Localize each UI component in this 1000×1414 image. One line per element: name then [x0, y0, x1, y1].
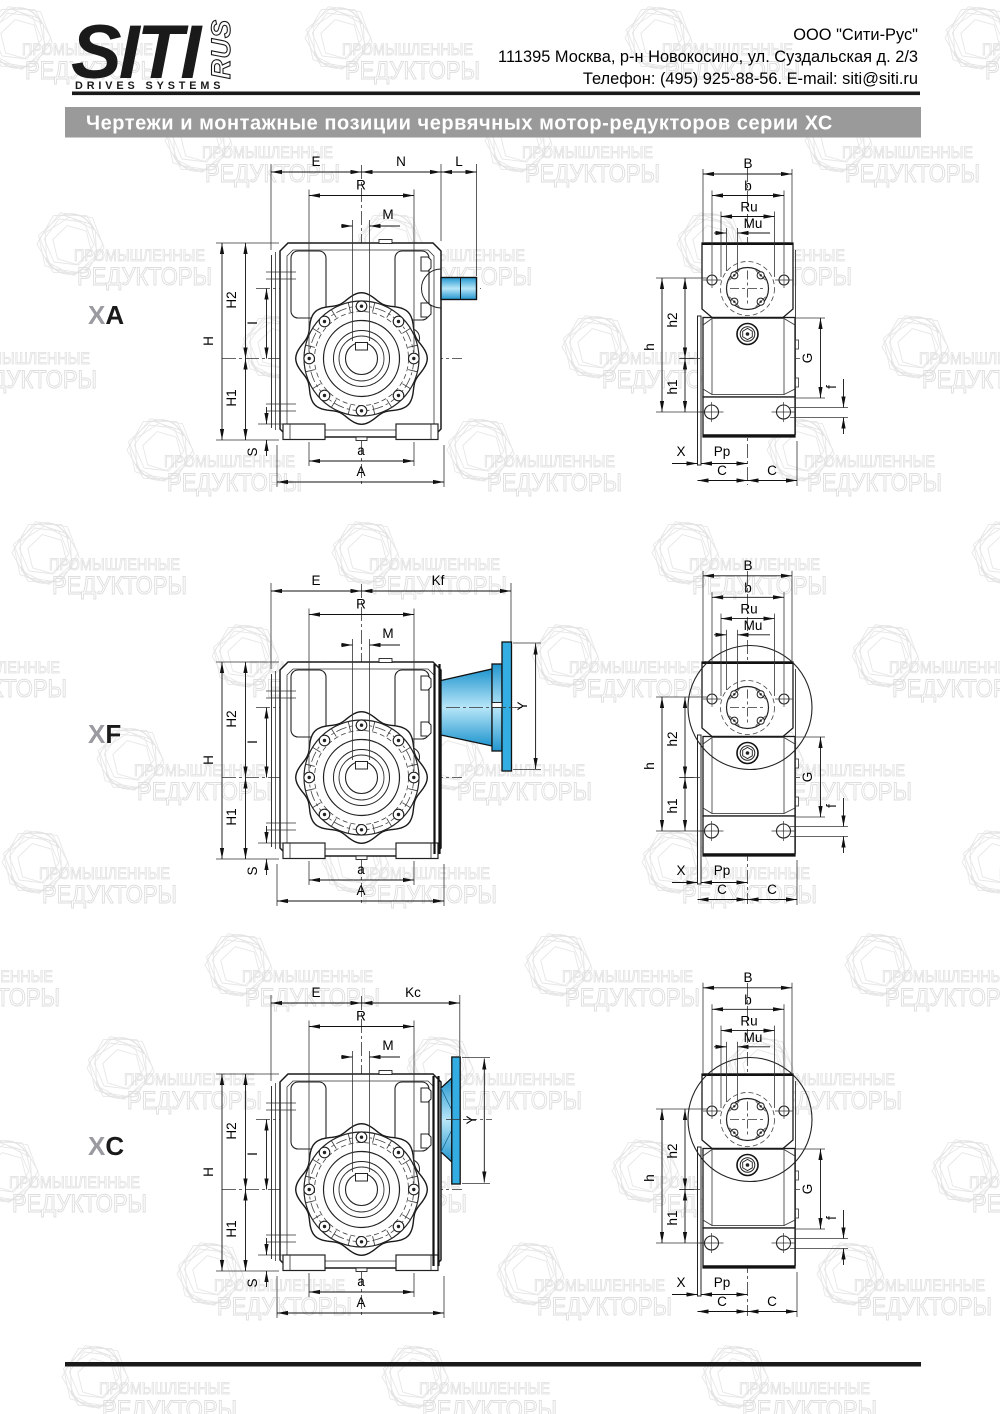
svg-text:b: b	[744, 992, 752, 1007]
svg-text:H2: H2	[224, 291, 239, 308]
svg-text:f: f	[824, 1216, 839, 1220]
svg-text:DRIVES SYSTEMS: DRIVES SYSTEMS	[75, 80, 224, 92]
svg-text:h: h	[642, 762, 657, 770]
svg-text:G: G	[800, 353, 815, 364]
svg-text:M: M	[382, 626, 393, 641]
svg-text:H: H	[201, 755, 216, 765]
svg-text:C: C	[767, 463, 777, 478]
svg-text:C: C	[717, 1294, 727, 1309]
svg-text:Pp: Pp	[714, 444, 731, 459]
svg-text:R: R	[356, 1009, 366, 1024]
svg-text:A: A	[356, 883, 365, 898]
svg-text:R: R	[356, 597, 366, 612]
svg-text:S: S	[245, 447, 260, 456]
svg-text:Ru: Ru	[740, 1014, 757, 1029]
svg-text:Y: Y	[515, 701, 530, 710]
svg-text:C: C	[717, 463, 727, 478]
svg-text:E: E	[311, 154, 320, 169]
svg-text:I: I	[245, 321, 260, 325]
svg-text:Mu: Mu	[744, 216, 763, 231]
svg-text:ООО "Сити-Рус": ООО "Сити-Рус"	[793, 26, 918, 44]
svg-text:a: a	[357, 862, 365, 877]
svg-text:H1: H1	[224, 389, 239, 406]
svg-text:R: R	[356, 178, 366, 193]
svg-text:B: B	[743, 558, 752, 573]
svg-text:C: C	[767, 882, 777, 897]
svg-text:h2: h2	[665, 731, 680, 746]
svg-text:b: b	[744, 580, 752, 595]
svg-text:Y: Y	[464, 1115, 479, 1124]
svg-text:Чертежи и монтажные позиции че: Чертежи и монтажные позиции червячных мо…	[86, 113, 833, 135]
svg-text:N: N	[396, 154, 406, 169]
svg-text:111395 Москва, р-н Новокосино,: 111395 Москва, р-н Новокосино, ул. Сузда…	[498, 48, 918, 66]
svg-text:h1: h1	[665, 1210, 680, 1225]
svg-text:S: S	[245, 1278, 260, 1287]
svg-text:B: B	[743, 970, 752, 985]
svg-text:Mu: Mu	[744, 1030, 763, 1045]
svg-text:B: B	[743, 156, 752, 171]
svg-text:h2: h2	[665, 1143, 680, 1158]
svg-text:L: L	[455, 154, 463, 169]
svg-text:RUS: RUS	[206, 19, 236, 79]
svg-text:h: h	[642, 343, 657, 351]
svg-text:h: h	[642, 1174, 657, 1182]
svg-text:S: S	[245, 866, 260, 875]
svg-text:Pp: Pp	[714, 863, 731, 878]
svg-text:A: A	[356, 464, 365, 479]
svg-text:H1: H1	[224, 1220, 239, 1237]
svg-text:I: I	[245, 740, 260, 744]
svg-text:h1: h1	[665, 379, 680, 394]
svg-text:Kc: Kc	[405, 985, 421, 1000]
svg-text:Kf: Kf	[432, 573, 445, 588]
svg-text:E: E	[311, 573, 320, 588]
svg-text:C: C	[767, 1294, 777, 1309]
svg-text:M: M	[382, 1038, 393, 1053]
svg-text:G: G	[800, 772, 815, 783]
svg-text:I: I	[245, 1152, 260, 1156]
svg-text:A: A	[356, 1295, 365, 1310]
svg-text:a: a	[357, 443, 365, 458]
svg-text:a: a	[357, 1274, 365, 1289]
svg-text:C: C	[717, 882, 727, 897]
svg-text:X: X	[676, 1275, 685, 1290]
svg-text:h2: h2	[665, 312, 680, 327]
svg-text:H2: H2	[224, 1122, 239, 1139]
svg-text:H1: H1	[224, 808, 239, 825]
svg-text:X: X	[676, 444, 685, 459]
svg-text:XF: XF	[88, 719, 121, 749]
svg-text:Pp: Pp	[714, 1275, 731, 1290]
svg-text:h1: h1	[665, 798, 680, 813]
svg-text:Ru: Ru	[740, 200, 757, 215]
svg-text:Mu: Mu	[744, 618, 763, 633]
svg-text:G: G	[800, 1184, 815, 1195]
svg-text:f: f	[824, 804, 839, 808]
svg-text:Телефон: (495) 925-88-56. E-ma: Телефон: (495) 925-88-56. E-mail: siti@s…	[583, 70, 918, 88]
svg-text:H: H	[201, 1167, 216, 1177]
svg-text:b: b	[744, 179, 752, 194]
svg-text:Ru: Ru	[740, 602, 757, 617]
svg-text:XA: XA	[88, 300, 124, 330]
svg-text:M: M	[382, 207, 393, 222]
svg-text:X: X	[676, 863, 685, 878]
svg-text:E: E	[311, 985, 320, 1000]
svg-text:XC: XC	[88, 1131, 124, 1161]
svg-text:H2: H2	[224, 710, 239, 727]
svg-text:H: H	[201, 336, 216, 346]
svg-text:f: f	[824, 385, 839, 389]
